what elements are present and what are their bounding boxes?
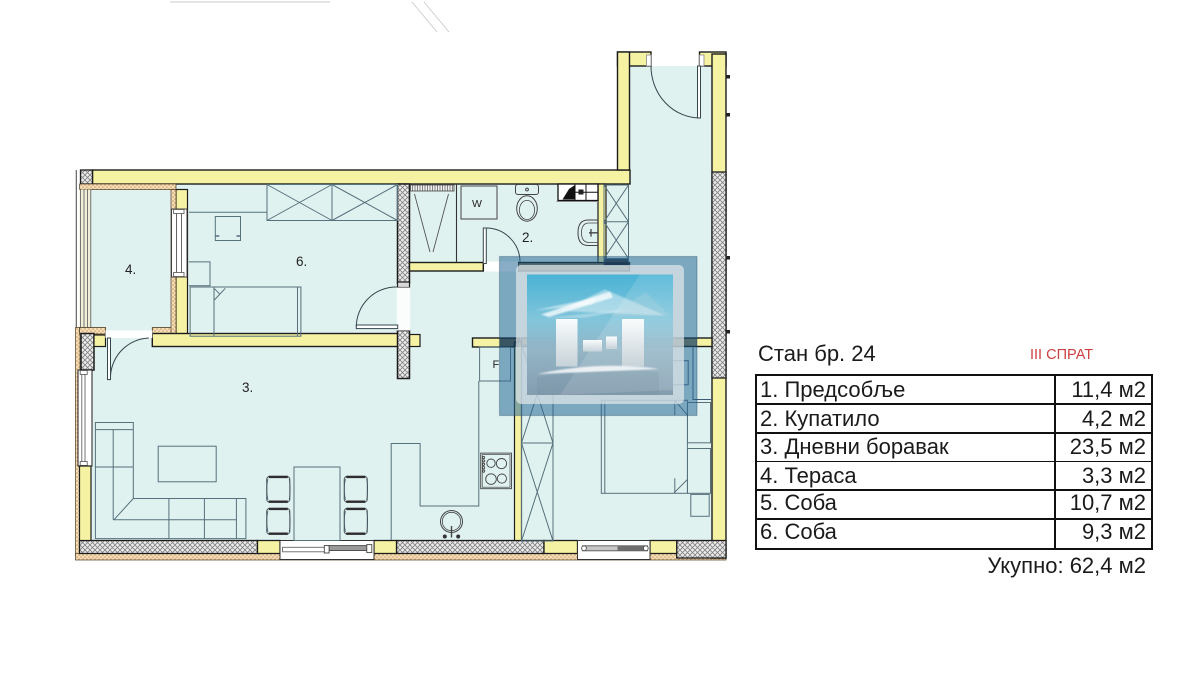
svg-text:W: W (472, 198, 482, 210)
svg-text:4.: 4. (125, 262, 136, 277)
svg-text:2.: 2. (522, 230, 533, 245)
svg-text:3.: 3. (242, 380, 253, 395)
svg-text:F: F (493, 359, 500, 371)
svg-text:6.: 6. (296, 254, 307, 269)
